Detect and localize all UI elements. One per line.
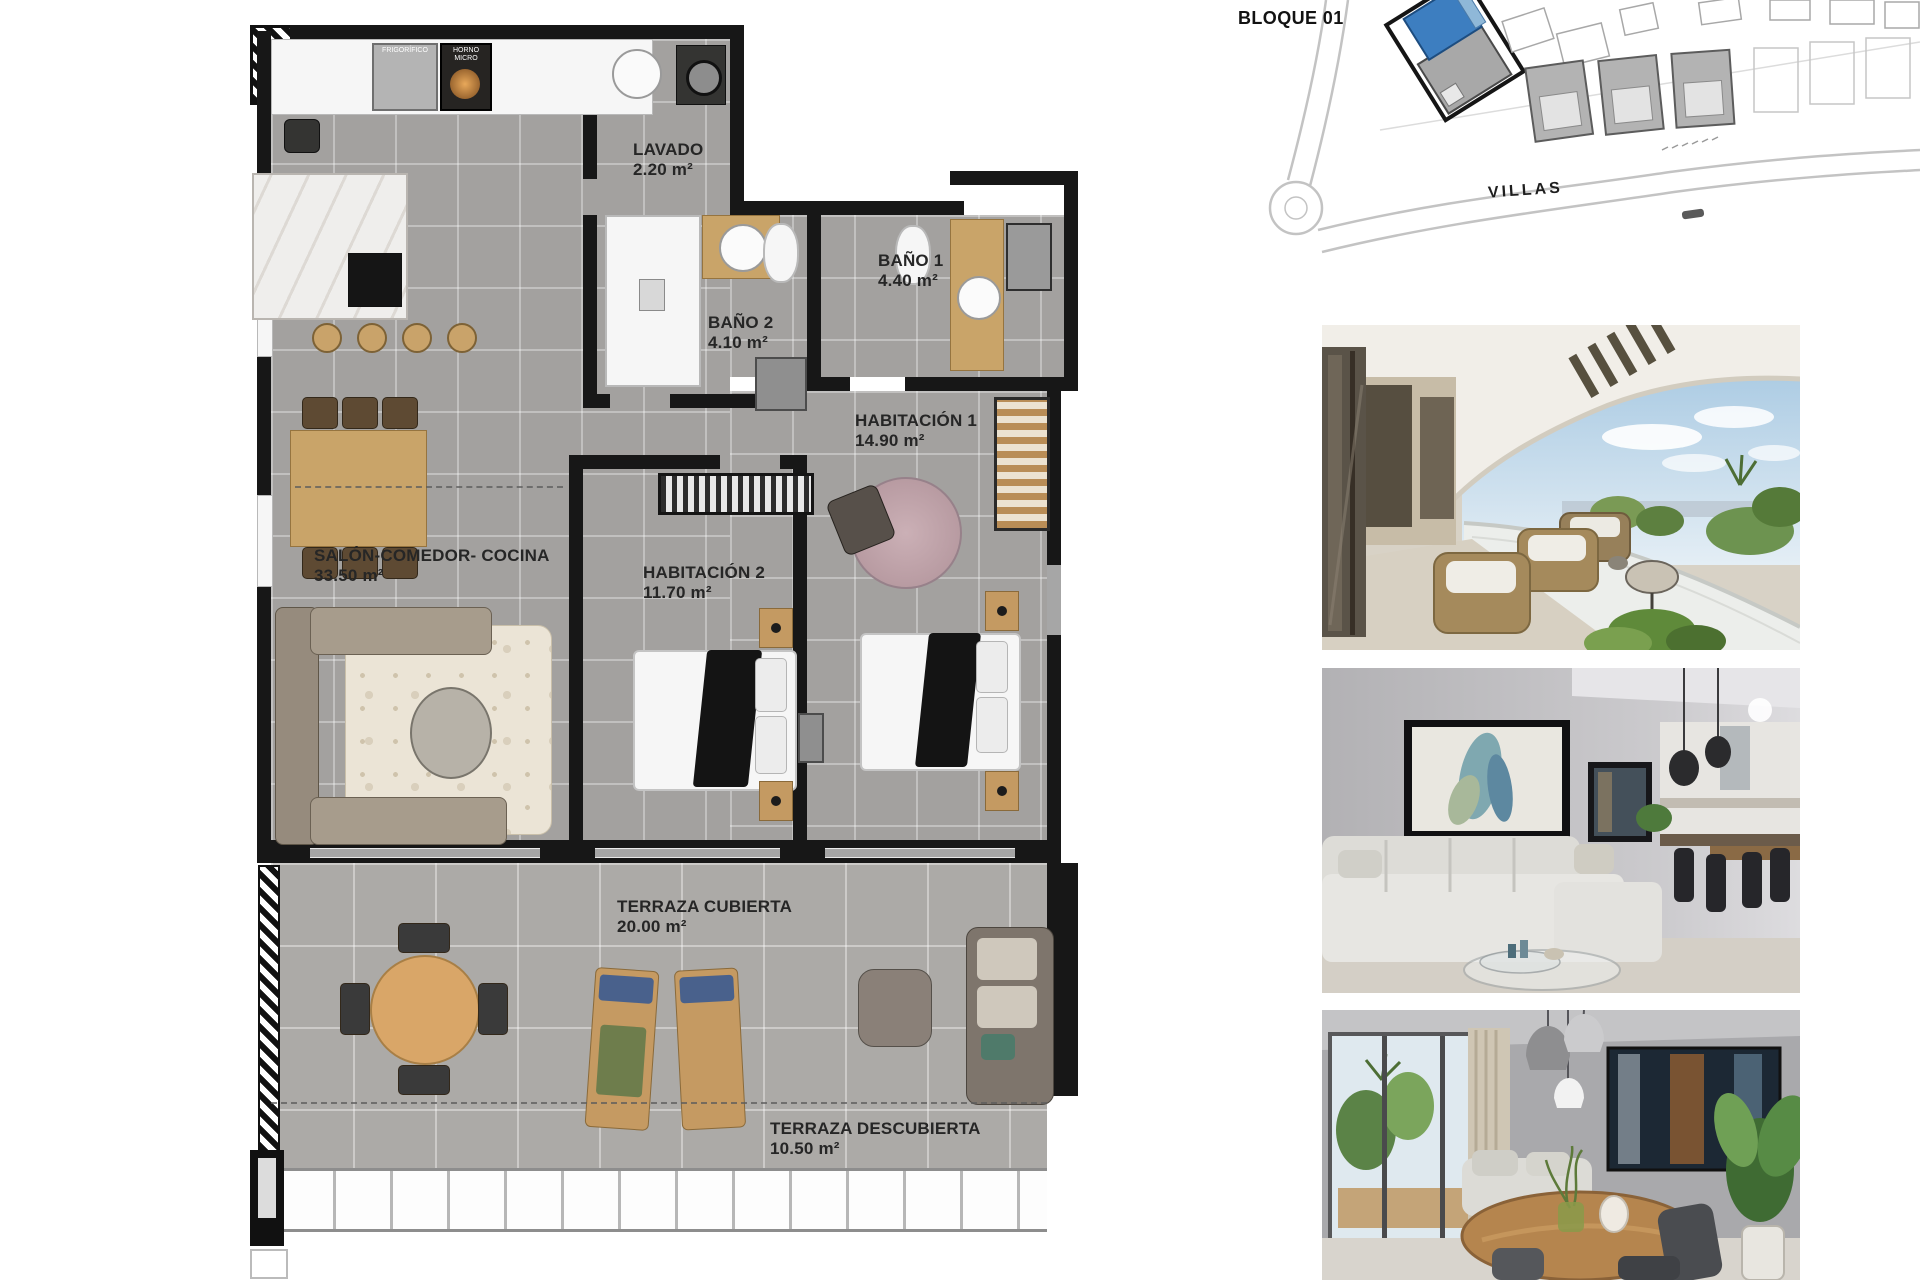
sofa-arm-top [310, 607, 492, 655]
room-label-terraza-descubierta: TERRAZA DESCUBIERTA10.50 m² [770, 1119, 981, 1159]
fridge: FRIGORÍFICO [372, 43, 438, 111]
dining-room-photo [1322, 1010, 1800, 1280]
shower-bano2 [605, 215, 701, 387]
bloque-01-building [1386, 0, 1523, 120]
nightstand [985, 771, 1019, 811]
room-label-habitacion1: HABITACIÓN 114.90 m² [855, 411, 977, 451]
site-plan: BLOQUE 01 VILLAS [1230, 0, 1920, 292]
coffee-machine [284, 119, 320, 153]
dresser-hab2 [658, 473, 814, 515]
room-label-habitacion2: HABITACIÓN 211.70 m² [643, 563, 765, 603]
window-hab2 [595, 848, 780, 858]
nightstand [985, 591, 1019, 631]
hatch-marks [1662, 137, 1718, 150]
dining-chair [342, 397, 378, 429]
pillar-strip [258, 865, 280, 1152]
dining-chair [382, 397, 418, 429]
bar-stool [312, 323, 342, 353]
cooktop [348, 253, 402, 307]
dining-table [290, 430, 427, 547]
room-label-bano1: BAÑO 14.40 m² [878, 251, 943, 291]
bar-stool [402, 323, 432, 353]
door-opening [1420, 397, 1454, 519]
oven-micro: HORNO MICRO [440, 43, 492, 111]
window-salon [310, 848, 540, 858]
wall-art-small [1588, 762, 1652, 842]
door-leaf [755, 357, 807, 411]
nightstand [759, 781, 793, 821]
terrace-photo [1322, 325, 1800, 650]
coffee-table [410, 687, 492, 779]
toilet-bano2 [763, 223, 799, 283]
terrace-pouf [858, 969, 932, 1047]
living-room-photo [1322, 668, 1800, 993]
vanity-bano1 [950, 219, 1004, 371]
bed-pillow [755, 658, 787, 712]
ceiling-light [1748, 698, 1772, 722]
window-left-2 [257, 495, 273, 587]
bed-pillow [976, 697, 1008, 753]
bloque-01-label: BLOQUE 01 [1238, 8, 1344, 29]
window-hab1-wall [1047, 565, 1061, 635]
room-label-lavado: LAVADO2.20 m² [633, 140, 703, 180]
laundry-sink [612, 49, 662, 99]
glass-doors [1322, 347, 1366, 637]
wardrobe-hab1 [994, 397, 1050, 531]
terrace-chair [340, 983, 370, 1035]
sofa [1322, 836, 1662, 962]
shower-bano1 [1006, 223, 1052, 291]
terrace-chair [398, 923, 450, 953]
sun-lounger [584, 967, 659, 1131]
room-label-salon: SALÓN-COMEDOR- COCINA33.50 m² [314, 546, 550, 586]
terrace-column [250, 1150, 284, 1246]
bed-pillow [976, 641, 1008, 693]
window-hab1 [825, 848, 1015, 858]
oven-glow [450, 69, 480, 99]
sun-lounger [674, 967, 746, 1130]
bed-pillow [755, 716, 787, 774]
terrace-column-base [250, 1249, 288, 1279]
sofa-arm-bottom [310, 797, 507, 845]
terrace-table [370, 955, 480, 1065]
washing-machine [676, 45, 726, 105]
dining-chair [302, 397, 338, 429]
room-label-terraza-cubierta: TERRAZA CUBIERTA20.00 m² [617, 897, 792, 937]
site-plan-drawing [1230, 0, 1920, 292]
terrace-sofa [966, 927, 1054, 1105]
street-mark [1682, 209, 1705, 220]
bar-stool [447, 323, 477, 353]
terrace-chair [398, 1065, 450, 1095]
room-label-bano2: BAÑO 24.10 m² [708, 313, 773, 353]
bar-stool [357, 323, 387, 353]
brochure-page: FRIGORÍFICO HORNO MICRO [0, 0, 1920, 1280]
balustrade [276, 1168, 1047, 1232]
door-opening [1364, 385, 1412, 527]
door-leaf [798, 713, 824, 763]
wall-art-large [1404, 720, 1570, 838]
nightstand [759, 608, 793, 648]
terrace-chair [478, 983, 508, 1035]
floor-plan: FRIGORÍFICO HORNO MICRO [250, 25, 1110, 1275]
